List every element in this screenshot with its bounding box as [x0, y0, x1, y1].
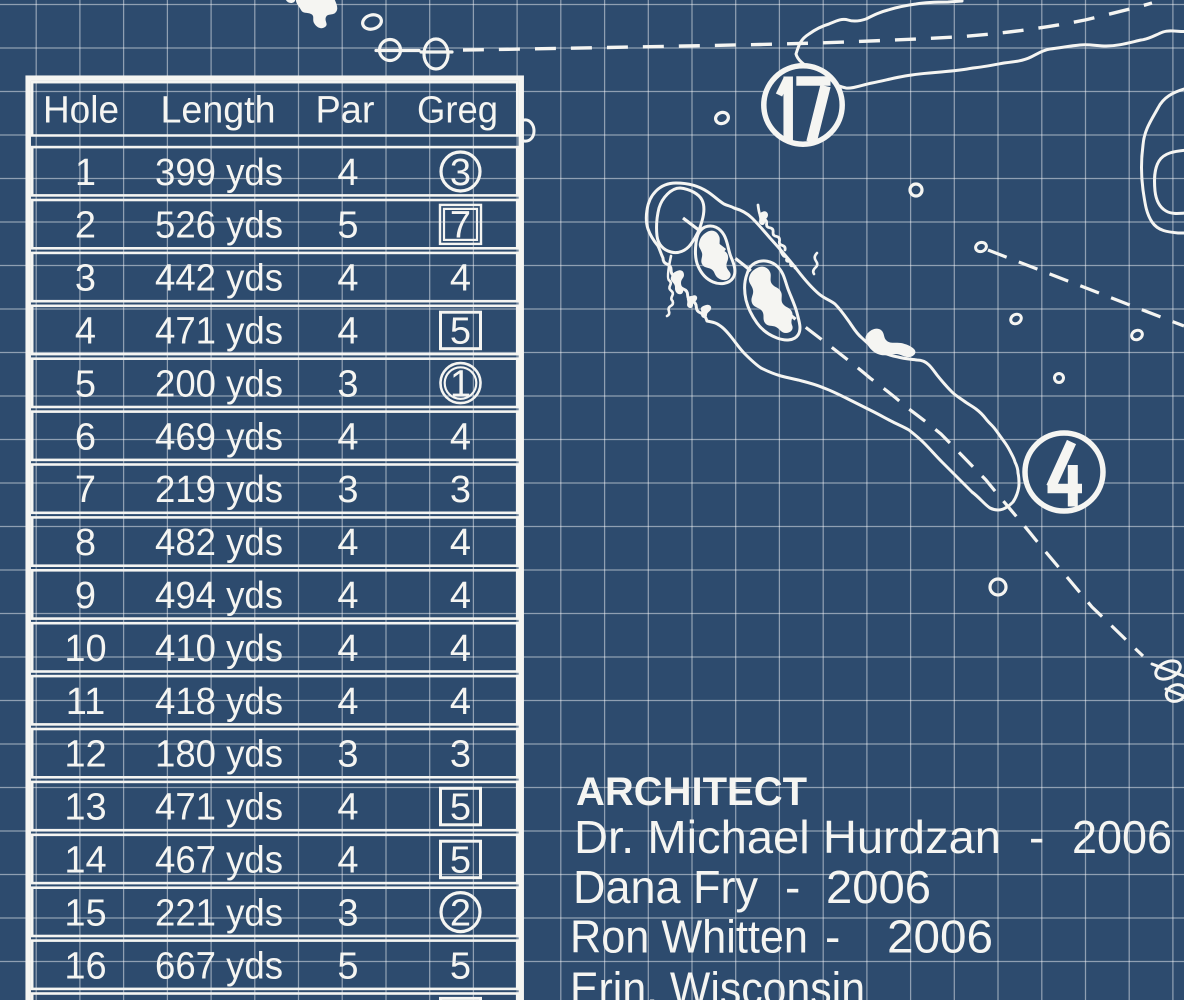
svg-text:471 yds: 471 yds [155, 787, 283, 829]
svg-text:4: 4 [450, 416, 471, 458]
svg-text:221 yds: 221 yds [155, 892, 283, 934]
svg-text:3: 3 [337, 734, 358, 776]
svg-text:5: 5 [337, 945, 358, 987]
svg-text:-: - [785, 861, 800, 913]
svg-text:3: 3 [337, 469, 358, 511]
svg-text:469 yds: 469 yds [155, 416, 283, 458]
svg-text:5: 5 [450, 787, 471, 829]
svg-text:4: 4 [337, 840, 358, 882]
svg-text:4: 4 [337, 787, 358, 829]
svg-text:4: 4 [337, 416, 358, 458]
svg-text:5: 5 [450, 840, 471, 882]
svg-text:4: 4 [75, 311, 96, 353]
svg-text:2006: 2006 [887, 911, 993, 963]
svg-text:3: 3 [75, 258, 96, 300]
svg-text:5: 5 [450, 311, 471, 353]
svg-text:467 yds: 467 yds [155, 840, 283, 882]
svg-text:4: 4 [337, 575, 358, 617]
svg-text:4: 4 [337, 628, 358, 670]
svg-text:180 yds: 180 yds [155, 734, 283, 776]
svg-text:4: 4 [337, 152, 358, 194]
svg-text:1: 1 [75, 152, 96, 194]
svg-text:667 yds: 667 yds [155, 945, 283, 987]
svg-text:3: 3 [450, 469, 471, 511]
svg-text:418 yds: 418 yds [155, 681, 283, 723]
svg-text:2006: 2006 [1072, 811, 1172, 863]
svg-text:5: 5 [450, 945, 471, 987]
svg-text:12: 12 [64, 734, 106, 776]
svg-text:8: 8 [75, 522, 96, 564]
svg-text:200 yds: 200 yds [155, 363, 283, 405]
svg-text:410 yds: 410 yds [155, 628, 283, 670]
svg-text:-: - [1029, 811, 1044, 863]
svg-text:Greg: Greg [417, 90, 498, 132]
svg-text:4: 4 [450, 628, 471, 670]
svg-text:Dana Fry: Dana Fry [573, 861, 758, 913]
svg-text:482 yds: 482 yds [155, 522, 283, 564]
svg-text:5: 5 [337, 205, 358, 247]
svg-text:3: 3 [337, 892, 358, 934]
svg-text:2006: 2006 [826, 861, 931, 913]
svg-text:11: 11 [66, 681, 105, 723]
svg-text:Length: Length [161, 90, 276, 132]
svg-text:Dr. Michael Hurdzan: Dr. Michael Hurdzan [574, 811, 1001, 863]
svg-text:1: 1 [450, 363, 471, 405]
svg-text:526 yds: 526 yds [155, 205, 283, 247]
svg-text:219 yds: 219 yds [155, 469, 283, 511]
svg-text:-: - [825, 911, 840, 963]
svg-text:ARCHITECT: ARCHITECT [576, 770, 807, 814]
svg-text:6: 6 [75, 416, 96, 458]
svg-text:Erin, Wisconsin: Erin, Wisconsin [570, 963, 865, 1000]
svg-text:471 yds: 471 yds [155, 311, 283, 353]
svg-text:15: 15 [64, 892, 106, 934]
svg-text:Hole: Hole [43, 90, 119, 132]
svg-text:4: 4 [450, 522, 471, 564]
svg-text:16: 16 [64, 945, 106, 987]
svg-text:4: 4 [337, 258, 358, 300]
svg-text:7: 7 [75, 469, 96, 511]
svg-text:2: 2 [75, 205, 96, 247]
svg-text:2: 2 [450, 892, 471, 934]
svg-text:Par: Par [316, 90, 375, 132]
svg-text:4: 4 [450, 258, 471, 300]
svg-text:10: 10 [64, 628, 106, 670]
svg-text:4: 4 [337, 522, 358, 564]
svg-text:13: 13 [64, 787, 106, 829]
svg-text:5: 5 [75, 363, 96, 405]
svg-text:4: 4 [450, 681, 471, 723]
svg-text:442 yds: 442 yds [155, 258, 283, 300]
svg-text:3: 3 [450, 152, 471, 194]
svg-text:494 yds: 494 yds [155, 575, 283, 617]
svg-text:4: 4 [450, 575, 471, 617]
svg-text:3: 3 [450, 734, 471, 776]
svg-text:7: 7 [450, 205, 471, 247]
svg-text:9: 9 [75, 575, 96, 617]
svg-text:4: 4 [337, 681, 358, 723]
svg-text:399 yds: 399 yds [155, 152, 283, 194]
svg-text:3: 3 [337, 363, 358, 405]
svg-text:4: 4 [337, 311, 358, 353]
svg-text:Ron Whitten: Ron Whitten [570, 911, 808, 963]
svg-text:14: 14 [64, 840, 106, 882]
